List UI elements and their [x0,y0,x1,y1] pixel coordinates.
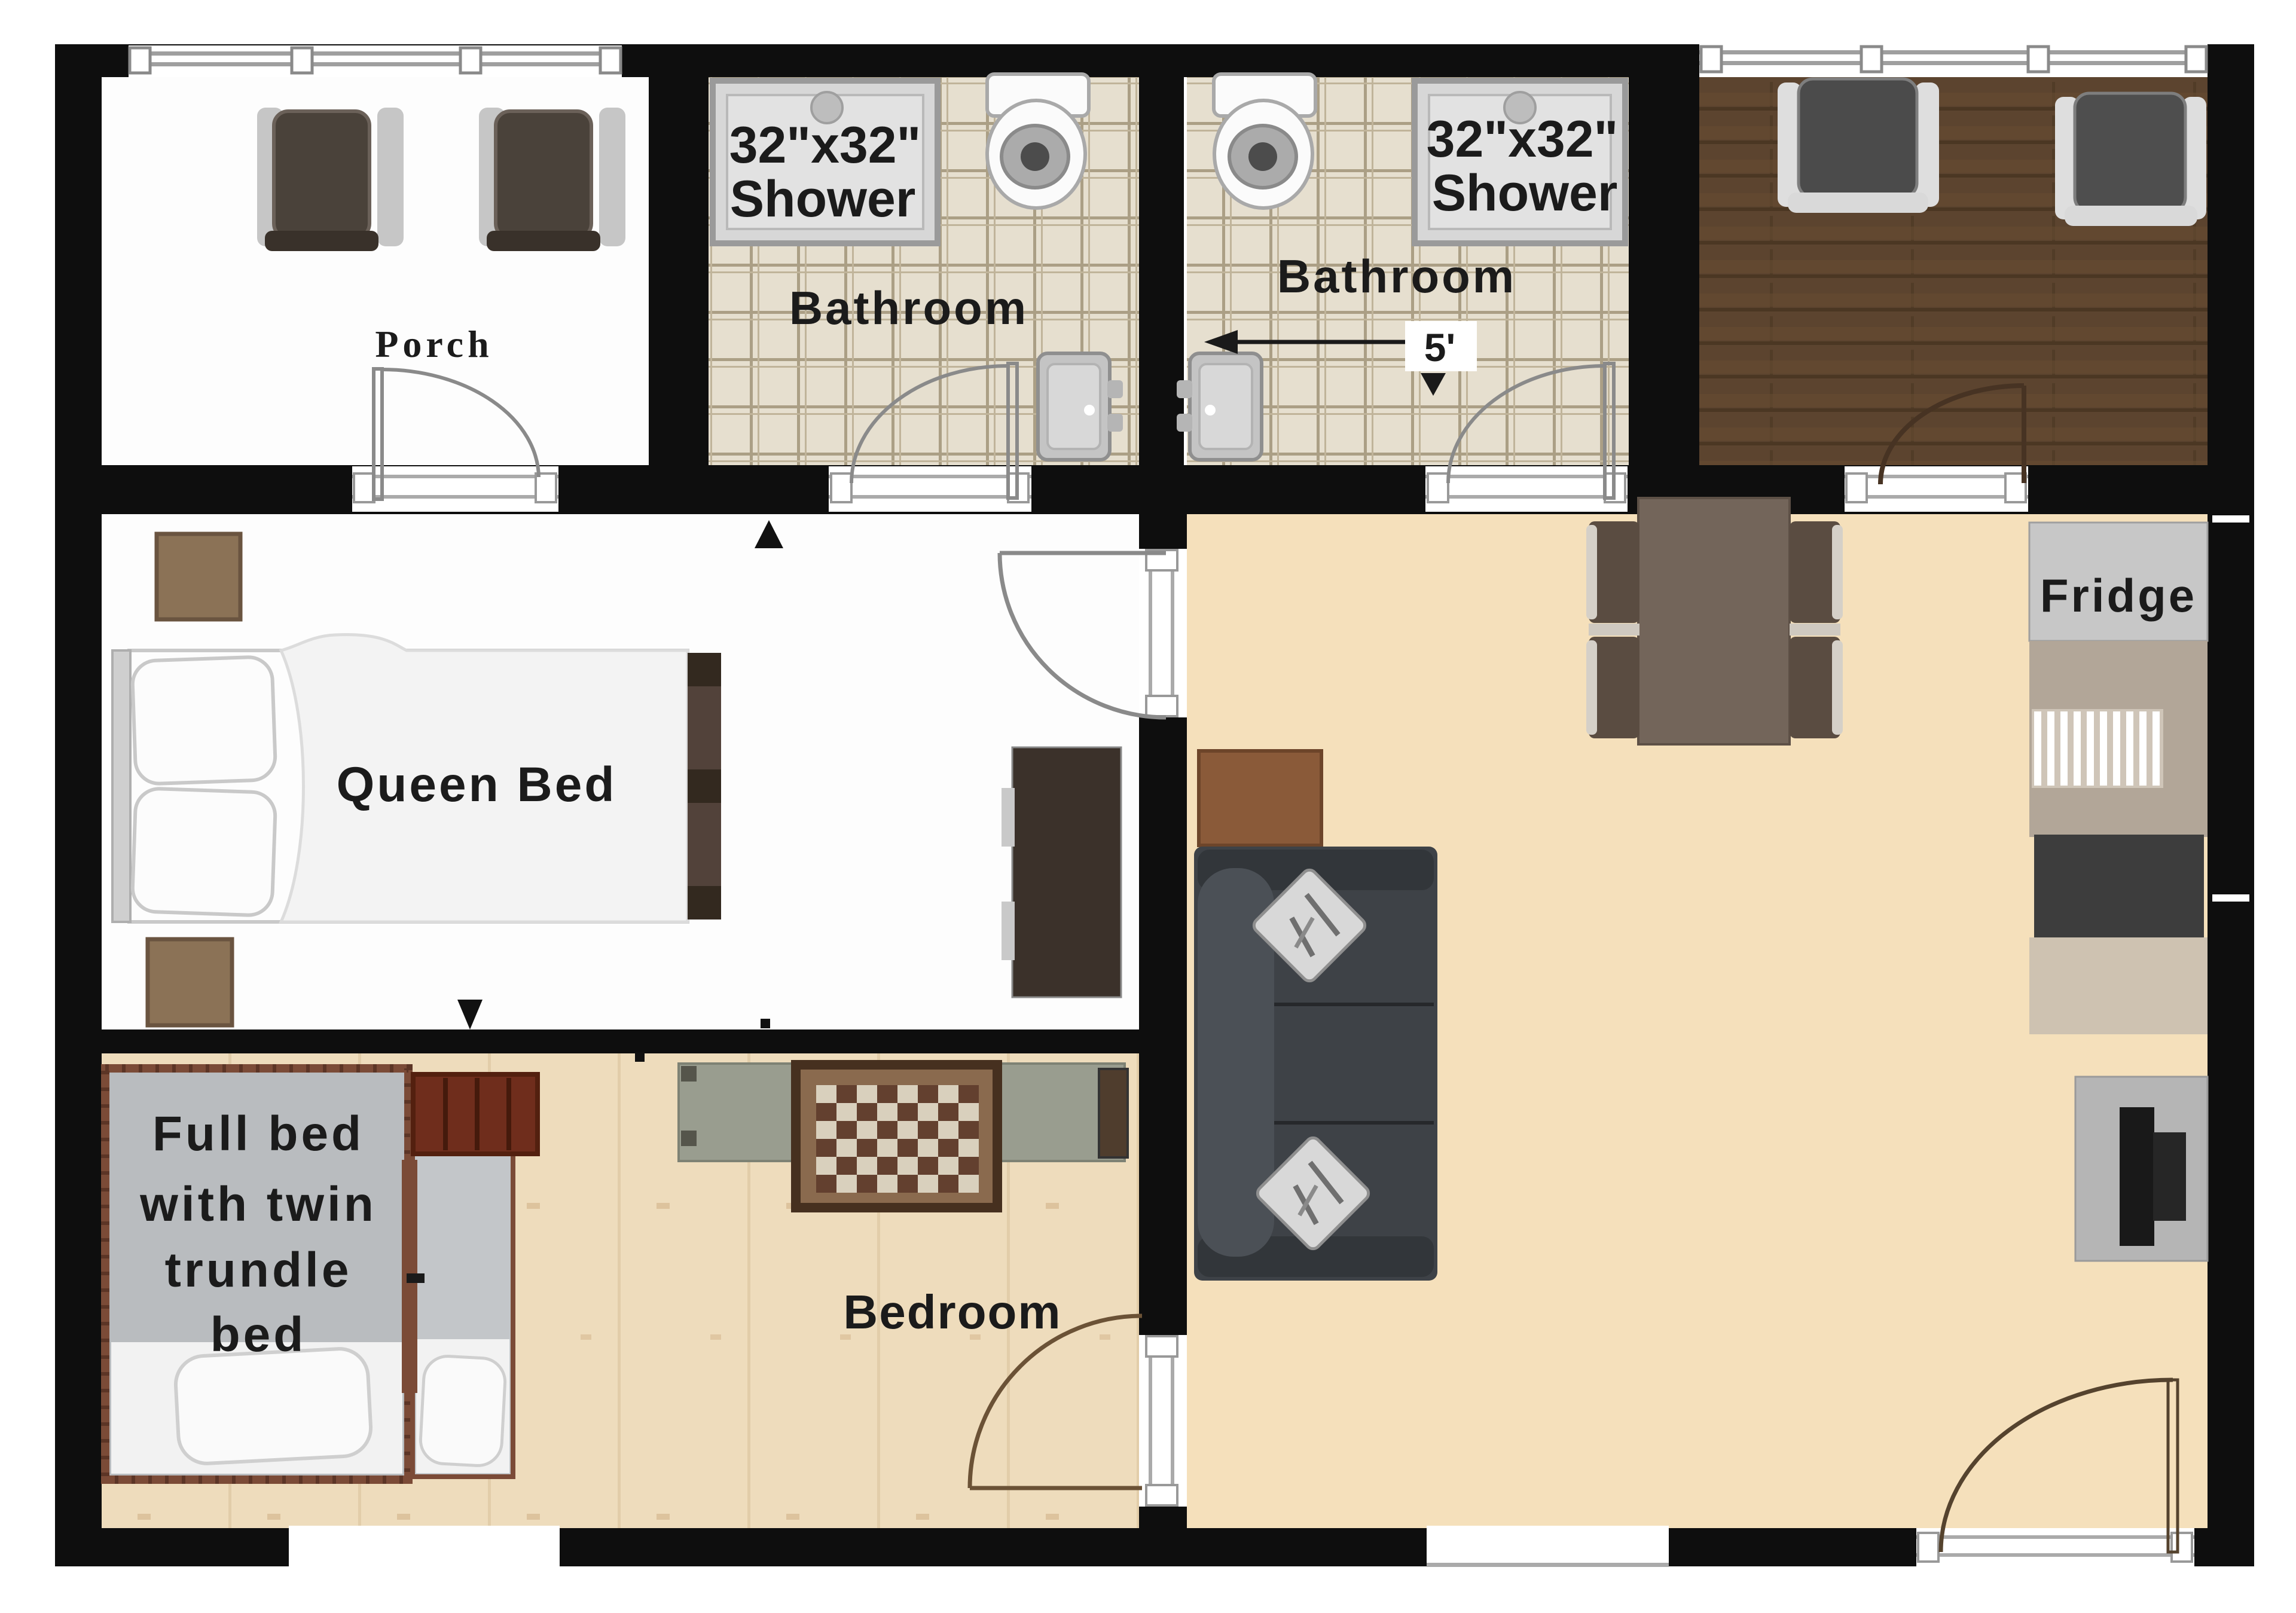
svg-text:Queen Bed: Queen Bed [337,757,617,812]
svg-text:5': 5' [1424,325,1455,369]
svg-text:trundle: trundle [165,1243,352,1297]
svg-text:Shower: Shower [730,170,916,228]
svg-text:with twin: with twin [139,1177,377,1232]
svg-text:Porch: Porch [375,323,493,365]
svg-text:Shower: Shower [1432,164,1618,222]
svg-text:Fridge: Fridge [2040,569,2197,622]
svg-text:Full bed: Full bed [152,1107,364,1161]
svg-text:Bathroom: Bathroom [789,282,1028,334]
svg-text:Bathroom: Bathroom [1277,250,1516,303]
svg-text:Bedroom: Bedroom [843,1285,1061,1339]
svg-text:32"x32": 32"x32" [1427,111,1619,168]
svg-text:bed: bed [210,1307,307,1362]
svg-text:32"x32": 32"x32" [729,117,921,174]
